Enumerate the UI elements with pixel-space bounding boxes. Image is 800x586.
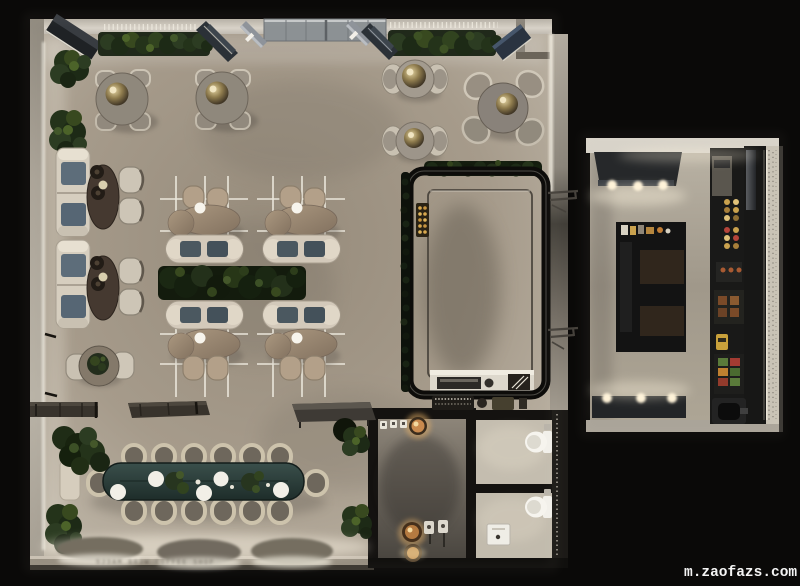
svg-text:m.zaofazs.com: m.zaofazs.com — [684, 565, 797, 581]
svg-text:SJ3AM BR3W COFFEE SHOP: SJ3AM BR3W COFFEE SHOP — [96, 559, 215, 566]
